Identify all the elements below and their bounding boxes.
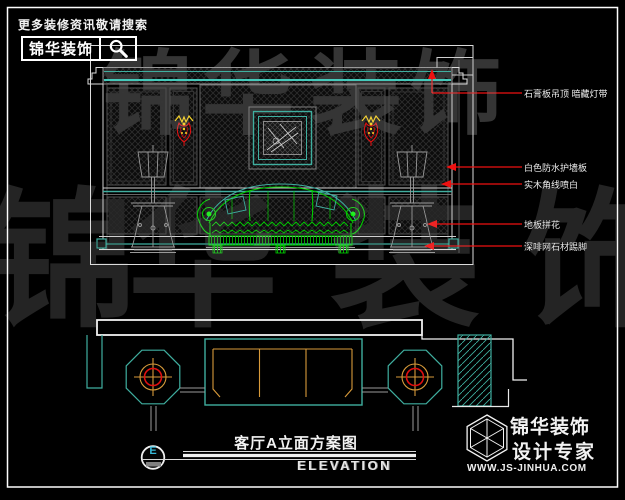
search-icon [99,38,135,59]
chair-rail [103,188,452,195]
footer-company: 锦华装饰 [510,412,590,439]
elevation-drawing [88,46,473,265]
annotation-wood-trim: 实木角线喷白 [524,178,578,191]
plan-sofa [205,339,362,405]
plan-table-left [126,350,180,404]
annotation-wall-panel: 白色防水护墙板 [524,161,587,174]
marker-scale-bar [146,462,161,467]
cube-logo-icon [467,415,507,461]
elevation-marker-letter: E [146,445,160,457]
annotation-skirting: 深啡网石材踢脚 [524,240,587,253]
brand-tagline: 更多装修资讯敬请搜索 [18,16,148,33]
plan-wall [97,320,422,335]
brand-search-box: 锦华装饰 [21,36,137,61]
plan-left-return [87,335,102,388]
footer-website: WWW.JS-JINHUA.COM [467,463,587,474]
cornice-molding [88,68,467,85]
annotation-floor: 地板拼花 [524,218,560,231]
footer-slogan: 设计专家 [512,437,596,464]
plan-column-hatched [458,335,491,406]
drawing-subtitle: ELEVATION [297,458,392,473]
annotation-ceiling: 石膏板吊顶 暗藏灯带 [524,87,608,100]
plan-drawing [87,320,527,431]
cad-screenshot: 更多装修资讯敬请搜索 锦华装饰 石膏板吊顶 暗藏灯带 白色防水护墙板 实木角线喷… [0,0,625,500]
drawing-title: 客厅A立面方案图 [228,432,364,453]
brand-logo-text: 锦华装饰 [23,38,99,59]
plan-table-right [388,350,442,404]
